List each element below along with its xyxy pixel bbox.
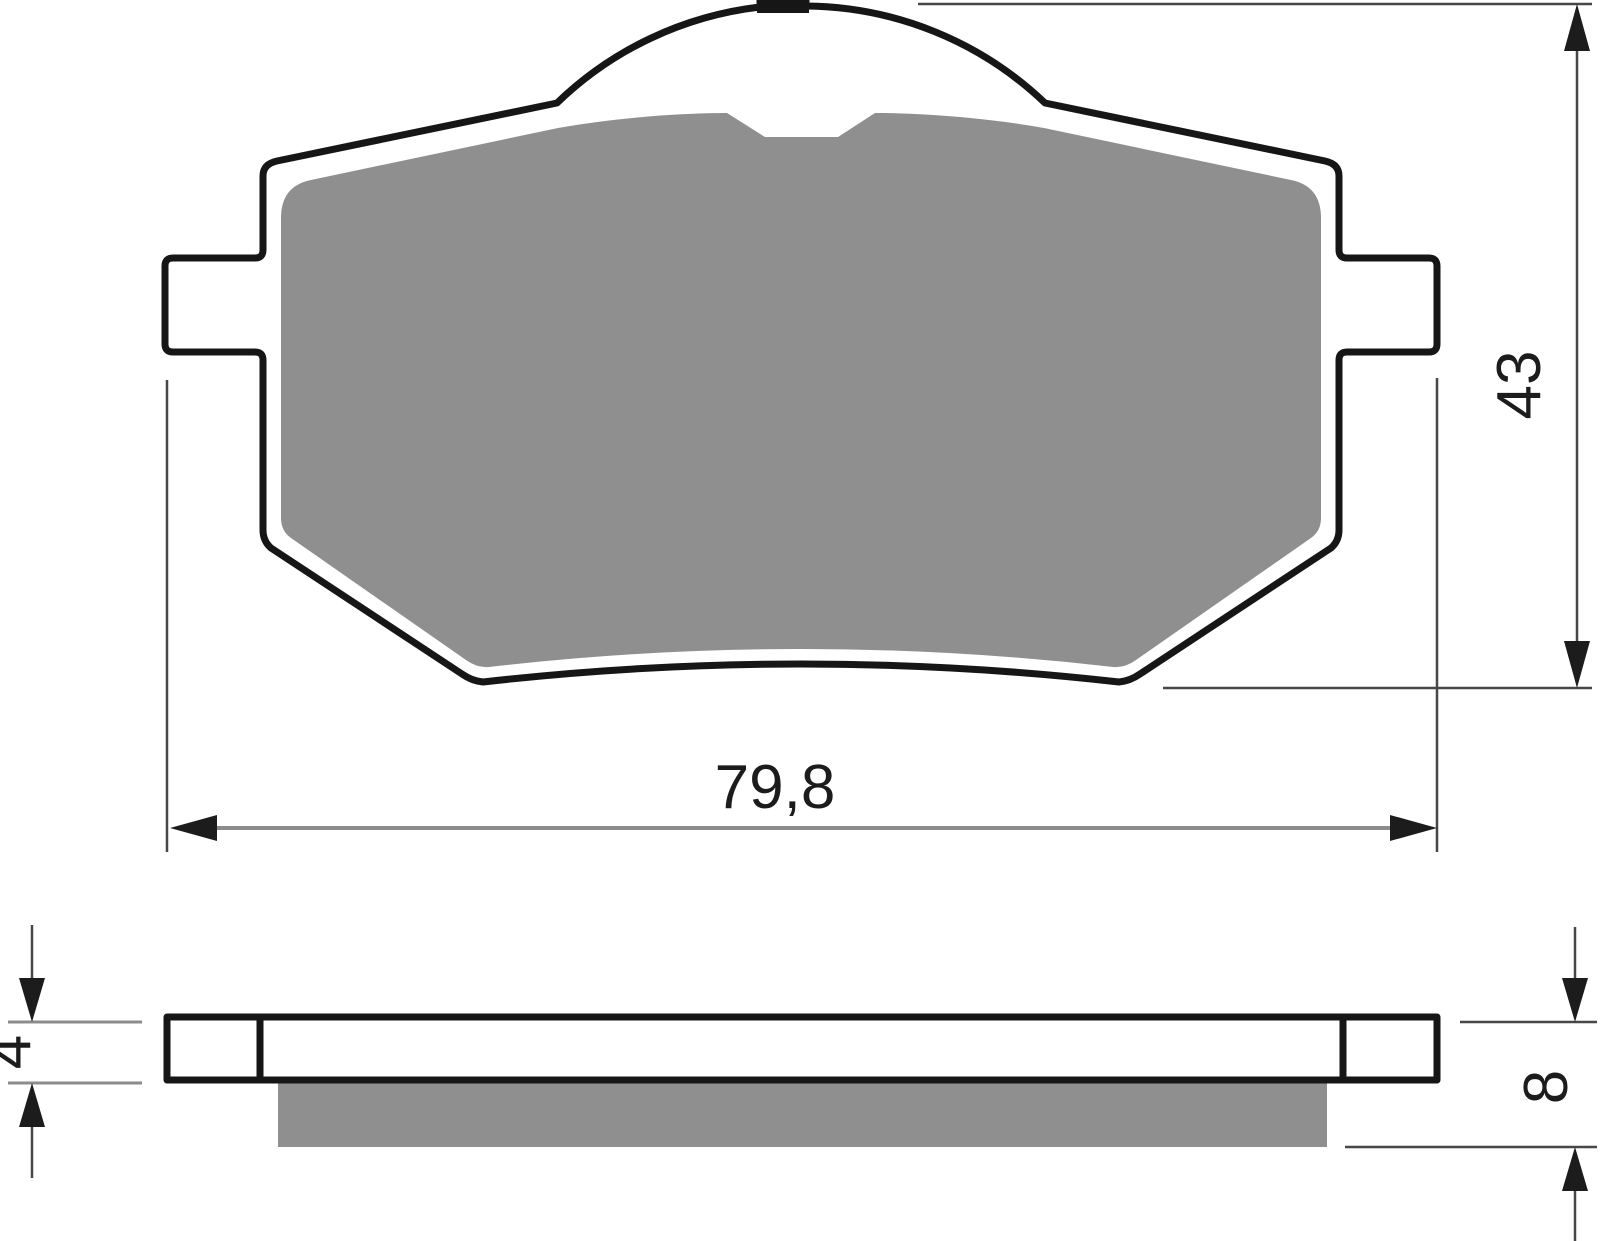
top-nub-tab (757, 0, 809, 13)
total-arrow-down (1562, 978, 1588, 1022)
plate-arrow-down (19, 978, 45, 1022)
height-arrow-bottom (1564, 641, 1590, 688)
dim-width-label: 79,8 (715, 753, 836, 822)
side-profile-view (167, 1017, 1437, 1147)
dim-total-thickness-label: 8 (1512, 1070, 1581, 1104)
width-arrow-right (1390, 815, 1437, 841)
friction-material-side (278, 1080, 1327, 1147)
plate-arrow-up (19, 1083, 45, 1127)
total-arrow-up (1562, 1147, 1588, 1191)
height-arrow-top (1564, 4, 1590, 51)
brake-pad-drawing: 79,8 43 4 (0, 0, 1600, 1241)
front-view (165, 0, 1437, 682)
dim-total-thickness: 8 (1345, 927, 1597, 1241)
dim-height-label: 43 (1485, 351, 1554, 420)
width-arrow-left (170, 815, 217, 841)
backing-plate-side (167, 1017, 1437, 1080)
drawing-stage: 79,8 43 4 (0, 0, 1600, 1241)
dim-plate-thickness-label: 4 (0, 1035, 44, 1069)
friction-material-front (281, 113, 1321, 667)
dim-plate-thickness: 4 (0, 925, 142, 1178)
